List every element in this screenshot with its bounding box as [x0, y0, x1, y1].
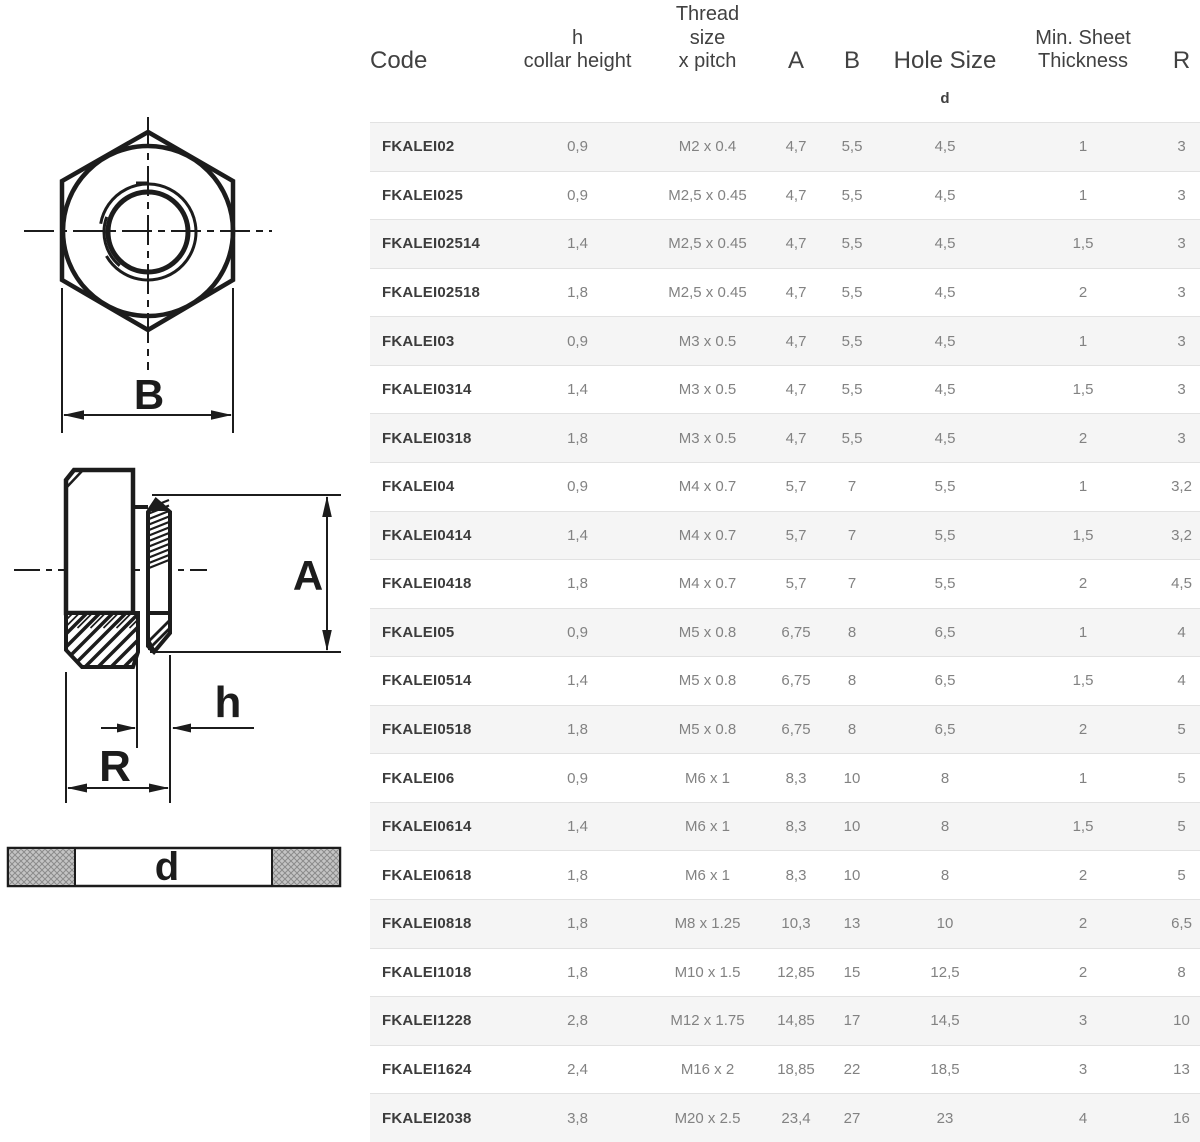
cell-a: 6,75: [775, 608, 817, 657]
cell-a: 4,7: [775, 268, 817, 317]
cell-a: 12,85: [775, 948, 817, 997]
cell-thread-size: M6 x 1: [640, 802, 775, 851]
cell-min-sheet-thickness: 3: [1003, 996, 1163, 1045]
cell-thread-size: M10 x 1.5: [640, 948, 775, 997]
table-row: FKALEI06 0,9 M6 x 1 8,3 10 8 1 5: [370, 753, 1200, 802]
table-row: FKALEI025 0,9 M2,5 x 0.45 4,7 5,5 4,5 1 …: [370, 171, 1200, 220]
sheet-hatched-left: [8, 848, 75, 886]
cell-r: 5: [1163, 802, 1200, 851]
header-r: R: [1163, 0, 1200, 74]
cell-a: 4,7: [775, 316, 817, 365]
table-row: FKALEI0318 1,8 M3 x 0.5 4,7 5,5 4,5 2 3: [370, 413, 1200, 462]
cell-hole-size: 8: [887, 753, 1003, 802]
cell-thread-size: M6 x 1: [640, 753, 775, 802]
sheet-hatched-right: [272, 848, 340, 886]
cell-a: 14,85: [775, 996, 817, 1045]
cell-b: 5,5: [817, 316, 887, 365]
dim-label-a: A: [293, 552, 323, 599]
cell-a: 8,3: [775, 802, 817, 851]
cell-min-sheet-thickness: 1,5: [1003, 365, 1163, 414]
cell-r: 3: [1163, 413, 1200, 462]
table-row: FKALEI0614 1,4 M6 x 1 8,3 10 8 1,5 5: [370, 802, 1200, 851]
cell-r: 5: [1163, 705, 1200, 754]
cell-code: FKALEI0418: [370, 559, 515, 608]
header-a: A: [775, 0, 817, 74]
cell-thread-size: M2,5 x 0.45: [640, 268, 775, 317]
cell-thread-size: M3 x 0.5: [640, 316, 775, 365]
cell-collar-height: 1,4: [515, 511, 640, 560]
cell-r: 3: [1163, 219, 1200, 268]
cell-hole-size: 4,5: [887, 413, 1003, 462]
cell-thread-size: M8 x 1.25: [640, 899, 775, 948]
dim-label-d: d: [155, 845, 179, 889]
cell-thread-size: M4 x 0.7: [640, 462, 775, 511]
cell-b: 8: [817, 656, 887, 705]
cell-thread-size: M12 x 1.75: [640, 996, 775, 1045]
cell-collar-height: 1,4: [515, 365, 640, 414]
table-row: FKALEI03 0,9 M3 x 0.5 4,7 5,5 4,5 1 3: [370, 316, 1200, 365]
cell-a: 5,7: [775, 559, 817, 608]
cell-b: 5,5: [817, 365, 887, 414]
cell-thread-size: M16 x 2: [640, 1045, 775, 1094]
cell-min-sheet-thickness: 3: [1003, 1045, 1163, 1094]
cell-a: 5,7: [775, 511, 817, 560]
cell-r: 3: [1163, 171, 1200, 220]
cell-hole-size: 8: [887, 850, 1003, 899]
cell-a: 23,4: [775, 1093, 817, 1142]
cell-collar-height: 0,9: [515, 462, 640, 511]
dim-label-h: h: [215, 678, 242, 727]
cell-min-sheet-thickness: 1: [1003, 316, 1163, 365]
cell-b: 7: [817, 462, 887, 511]
cell-hole-size: 14,5: [887, 996, 1003, 1045]
cell-hole-size: 6,5: [887, 608, 1003, 657]
cell-hole-size: 4,5: [887, 122, 1003, 171]
table-row: FKALEI0818 1,8 M8 x 1.25 10,3 13 10 2 6,…: [370, 899, 1200, 948]
header-hole-size: Hole Size: [887, 0, 1003, 74]
cell-min-sheet-thickness: 2: [1003, 899, 1163, 948]
table-row: FKALEI2038 3,8 M20 x 2.5 23,4 27 23 4 16: [370, 1093, 1200, 1142]
cell-r: 3: [1163, 268, 1200, 317]
cell-code: FKALEI2038: [370, 1093, 515, 1142]
cell-r: 13: [1163, 1045, 1200, 1094]
table-row: FKALEI0418 1,8 M4 x 0.7 5,7 7 5,5 2 4,5: [370, 559, 1200, 608]
b-arrow-right: [211, 410, 232, 420]
cell-collar-height: 0,9: [515, 608, 640, 657]
cell-collar-height: 0,9: [515, 316, 640, 365]
cell-hole-size: 8: [887, 802, 1003, 851]
cell-r: 10: [1163, 996, 1200, 1045]
cell-b: 8: [817, 608, 887, 657]
cell-a: 6,75: [775, 705, 817, 754]
cell-b: 5,5: [817, 268, 887, 317]
cell-min-sheet-thickness: 1: [1003, 171, 1163, 220]
cell-a: 4,7: [775, 219, 817, 268]
cell-r: 5: [1163, 753, 1200, 802]
header-b: B: [817, 0, 887, 74]
cell-hole-size: 6,5: [887, 656, 1003, 705]
table-row: FKALEI1018 1,8 M10 x 1.5 12,85 15 12,5 2…: [370, 948, 1200, 997]
cell-collar-height: 1,8: [515, 705, 640, 754]
cell-thread-size: M2 x 0.4: [640, 122, 775, 171]
cell-b: 15: [817, 948, 887, 997]
header-min-sheet-thickness: Min. Sheet Thickness: [1003, 0, 1163, 74]
cell-collar-height: 1,8: [515, 948, 640, 997]
cell-r: 5: [1163, 850, 1200, 899]
cell-r: 3: [1163, 365, 1200, 414]
cell-code: FKALEI05: [370, 608, 515, 657]
header-row-sub: d: [370, 74, 1200, 122]
cell-a: 5,7: [775, 462, 817, 511]
cell-code: FKALEI0318: [370, 413, 515, 462]
cell-min-sheet-thickness: 2: [1003, 705, 1163, 754]
table-row: FKALEI1624 2,4 M16 x 2 18,85 22 18,5 3 1…: [370, 1045, 1200, 1094]
cell-min-sheet-thickness: 1,5: [1003, 802, 1163, 851]
hex-nut-top-view: B: [24, 117, 272, 433]
cell-b: 8: [817, 705, 887, 754]
header-row-main: Code h collar height Thread size x pitch…: [370, 0, 1200, 74]
cell-b: 7: [817, 511, 887, 560]
cell-thread-size: M3 x 0.5: [640, 413, 775, 462]
hex-nut-side-section-view: A h R: [14, 470, 341, 803]
table-row: FKALEI05 0,9 M5 x 0.8 6,75 8 6,5 1 4: [370, 608, 1200, 657]
cell-hole-size: 10: [887, 899, 1003, 948]
cell-a: 8,3: [775, 753, 817, 802]
cell-code: FKALEI1624: [370, 1045, 515, 1094]
cell-code: FKALEI06: [370, 753, 515, 802]
cell-hole-size: 4,5: [887, 268, 1003, 317]
cell-code: FKALEI04: [370, 462, 515, 511]
b-arrow-left: [63, 410, 84, 420]
header-collar-height: h collar height: [515, 0, 640, 74]
cell-collar-height: 1,8: [515, 899, 640, 948]
cell-collar-height: 1,8: [515, 850, 640, 899]
cell-hole-size: 4,5: [887, 316, 1003, 365]
cell-r: 4: [1163, 608, 1200, 657]
cell-collar-height: 2,4: [515, 1045, 640, 1094]
cell-thread-size: M4 x 0.7: [640, 511, 775, 560]
table-row: FKALEI02 0,9 M2 x 0.4 4,7 5,5 4,5 1 3: [370, 122, 1200, 171]
cell-code: FKALEI1018: [370, 948, 515, 997]
dim-label-b: B: [134, 371, 164, 418]
cell-a: 4,7: [775, 171, 817, 220]
cell-b: 10: [817, 850, 887, 899]
cell-hole-size: 18,5: [887, 1045, 1003, 1094]
cell-a: 4,7: [775, 365, 817, 414]
cell-thread-size: M5 x 0.8: [640, 705, 775, 754]
header-hole-size-d: d: [887, 74, 1003, 122]
cell-b: 13: [817, 899, 887, 948]
page: B: [0, 0, 1200, 1142]
cell-b: 5,5: [817, 171, 887, 220]
cell-min-sheet-thickness: 1,5: [1003, 511, 1163, 560]
cell-r: 8: [1163, 948, 1200, 997]
cell-min-sheet-thickness: 1,5: [1003, 219, 1163, 268]
cell-collar-height: 1,8: [515, 268, 640, 317]
table-row: FKALEI04 0,9 M4 x 0.7 5,7 7 5,5 1 3,2: [370, 462, 1200, 511]
sheet-cross-section-view: d: [8, 845, 340, 889]
cell-r: 3,2: [1163, 462, 1200, 511]
cell-code: FKALEI025: [370, 171, 515, 220]
cell-hole-size: 5,5: [887, 559, 1003, 608]
table-row: FKALEI0518 1,8 M5 x 0.8 6,75 8 6,5 2 5: [370, 705, 1200, 754]
cell-b: 17: [817, 996, 887, 1045]
cell-code: FKALEI0514: [370, 656, 515, 705]
cell-thread-size: M5 x 0.8: [640, 656, 775, 705]
h-arrow-left: [117, 724, 136, 733]
cell-code: FKALEI0618: [370, 850, 515, 899]
cell-b: 5,5: [817, 122, 887, 171]
cell-hole-size: 5,5: [887, 511, 1003, 560]
cell-min-sheet-thickness: 1: [1003, 608, 1163, 657]
cell-hole-size: 12,5: [887, 948, 1003, 997]
cell-collar-height: 0,9: [515, 753, 640, 802]
table-header: Code h collar height Thread size x pitch…: [370, 0, 1200, 122]
cell-b: 7: [817, 559, 887, 608]
cell-min-sheet-thickness: 1,5: [1003, 656, 1163, 705]
cell-r: 4,5: [1163, 559, 1200, 608]
cell-code: FKALEI02514: [370, 219, 515, 268]
cell-hole-size: 6,5: [887, 705, 1003, 754]
cell-thread-size: M6 x 1: [640, 850, 775, 899]
h-arrow-right: [172, 724, 191, 733]
cell-collar-height: 1,4: [515, 802, 640, 851]
a-arrow-bottom: [322, 630, 332, 651]
table-row: FKALEI02514 1,4 M2,5 x 0.45 4,7 5,5 4,5 …: [370, 219, 1200, 268]
cell-min-sheet-thickness: 4: [1003, 1093, 1163, 1142]
header-code: Code: [370, 0, 515, 74]
cell-b: 22: [817, 1045, 887, 1094]
cell-b: 10: [817, 802, 887, 851]
cell-b: 5,5: [817, 413, 887, 462]
cell-r: 4: [1163, 656, 1200, 705]
technical-drawings: B: [0, 0, 370, 1142]
cell-min-sheet-thickness: 1: [1003, 462, 1163, 511]
cell-thread-size: M4 x 0.7: [640, 559, 775, 608]
cell-code: FKALEI0614: [370, 802, 515, 851]
cell-thread-size: M5 x 0.8: [640, 608, 775, 657]
cell-a: 18,85: [775, 1045, 817, 1094]
cell-collar-height: 1,4: [515, 656, 640, 705]
cell-b: 27: [817, 1093, 887, 1142]
table-row: FKALEI0314 1,4 M3 x 0.5 4,7 5,5 4,5 1,5 …: [370, 365, 1200, 414]
cell-collar-height: 2,8: [515, 996, 640, 1045]
cell-hole-size: 5,5: [887, 462, 1003, 511]
cell-min-sheet-thickness: 1: [1003, 753, 1163, 802]
cell-r: 3,2: [1163, 511, 1200, 560]
cell-a: 10,3: [775, 899, 817, 948]
dim-label-r: R: [99, 742, 131, 791]
cell-code: FKALEI0818: [370, 899, 515, 948]
cell-r: 6,5: [1163, 899, 1200, 948]
cell-min-sheet-thickness: 2: [1003, 850, 1163, 899]
cell-thread-size: M2,5 x 0.45: [640, 219, 775, 268]
cell-code: FKALEI0414: [370, 511, 515, 560]
cell-thread-size: M20 x 2.5: [640, 1093, 775, 1142]
cell-collar-height: 3,8: [515, 1093, 640, 1142]
spec-table: Code h collar height Thread size x pitch…: [370, 0, 1200, 1142]
table-row: FKALEI0414 1,4 M4 x 0.7 5,7 7 5,5 1,5 3,…: [370, 511, 1200, 560]
cell-hole-size: 4,5: [887, 365, 1003, 414]
cell-thread-size: M3 x 0.5: [640, 365, 775, 414]
cell-min-sheet-thickness: 2: [1003, 948, 1163, 997]
cell-collar-height: 1,4: [515, 219, 640, 268]
cell-collar-height: 0,9: [515, 171, 640, 220]
cell-a: 4,7: [775, 122, 817, 171]
header-thread-size: Thread size x pitch: [640, 0, 775, 74]
table-row: FKALEI0514 1,4 M5 x 0.8 6,75 8 6,5 1,5 4: [370, 656, 1200, 705]
table-row: FKALEI0618 1,8 M6 x 1 8,3 10 8 2 5: [370, 850, 1200, 899]
r-arrow-right: [149, 784, 169, 793]
cell-r: 16: [1163, 1093, 1200, 1142]
cell-thread-size: M2,5 x 0.45: [640, 171, 775, 220]
cell-b: 5,5: [817, 219, 887, 268]
cell-r: 3: [1163, 316, 1200, 365]
cell-code: FKALEI0518: [370, 705, 515, 754]
nut-head-outline: [66, 470, 133, 613]
cell-hole-size: 4,5: [887, 171, 1003, 220]
cell-code: FKALEI02518: [370, 268, 515, 317]
cell-b: 10: [817, 753, 887, 802]
cell-hole-size: 23: [887, 1093, 1003, 1142]
cell-min-sheet-thickness: 2: [1003, 413, 1163, 462]
cell-collar-height: 1,8: [515, 413, 640, 462]
cell-hole-size: 4,5: [887, 219, 1003, 268]
cell-r: 3: [1163, 122, 1200, 171]
r-arrow-left: [67, 784, 87, 793]
cell-min-sheet-thickness: 2: [1003, 559, 1163, 608]
cell-code: FKALEI03: [370, 316, 515, 365]
table-body: FKALEI02 0,9 M2 x 0.4 4,7 5,5 4,5 1 3 FK…: [370, 122, 1200, 1142]
cell-a: 8,3: [775, 850, 817, 899]
a-arrow-top: [322, 496, 332, 517]
cell-a: 4,7: [775, 413, 817, 462]
cell-a: 6,75: [775, 656, 817, 705]
cell-collar-height: 1,8: [515, 559, 640, 608]
table-row: FKALEI02518 1,8 M2,5 x 0.45 4,7 5,5 4,5 …: [370, 268, 1200, 317]
cell-min-sheet-thickness: 1: [1003, 122, 1163, 171]
cell-code: FKALEI1228: [370, 996, 515, 1045]
cell-code: FKALEI0314: [370, 365, 515, 414]
cell-collar-height: 0,9: [515, 122, 640, 171]
cell-code: FKALEI02: [370, 122, 515, 171]
table-row: FKALEI1228 2,8 M12 x 1.75 14,85 17 14,5 …: [370, 996, 1200, 1045]
cell-min-sheet-thickness: 2: [1003, 268, 1163, 317]
